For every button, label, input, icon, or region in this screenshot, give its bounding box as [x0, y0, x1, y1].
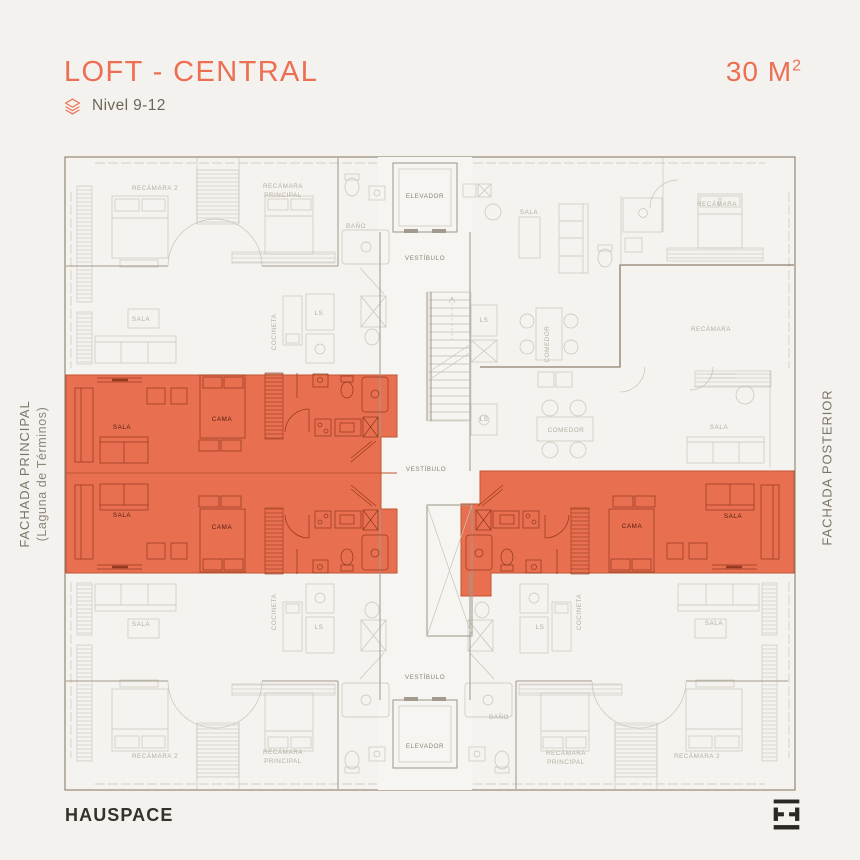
plan-label: COCINETA: [576, 594, 583, 631]
plan-label: COMEDOR: [544, 326, 551, 363]
plan-label: PRINCIPAL: [264, 192, 302, 199]
layers-icon: [64, 98, 81, 115]
plan-label: ELEVADOR: [406, 743, 444, 750]
area-superscript: 2: [792, 58, 802, 75]
area-number: 30 M: [726, 56, 792, 87]
page-title: LOFT - CENTRAL: [64, 56, 318, 89]
plan-label: SALA: [113, 512, 132, 519]
facade-principal-label: FACHADA PRINCIPAL (Laguna de Términos): [17, 324, 49, 624]
facade-posterior-label: FACHADA POSTERIOR: [820, 318, 835, 618]
plan-label: SALA: [705, 620, 724, 627]
hauspace-logo-mark: [773, 799, 800, 830]
plan-label: BAÑO: [346, 221, 366, 230]
plan-label: LS: [480, 317, 489, 324]
level-row: Nivel 9-12: [64, 97, 166, 115]
plan-label: SALA: [113, 424, 132, 431]
plan-label: BAÑO: [489, 712, 509, 721]
plan-label: RECÁMARA: [263, 747, 303, 756]
plan-label: ELEVADOR: [406, 193, 444, 200]
plan-label: LS: [480, 416, 489, 423]
facade-posterior-line1: FACHADA POSTERIOR: [820, 318, 835, 618]
plan-label: CAMA: [212, 416, 233, 423]
plan-label: SALA: [132, 316, 151, 323]
facade-principal-line1: FACHADA PRINCIPAL: [17, 324, 32, 624]
plan-label: SALA: [132, 621, 151, 628]
facade-principal-line2: (Laguna de Términos): [35, 324, 49, 624]
plan-label: SALA: [520, 209, 539, 216]
plan-label: COCINETA: [271, 594, 278, 631]
plan-label: VESTÍBULO: [406, 464, 446, 473]
brand-name: HAUSPACE: [65, 805, 173, 826]
plan-label: PRINCIPAL: [264, 758, 302, 765]
plan-label: LS: [315, 310, 324, 317]
plan-label: RECÁMARA: [263, 181, 303, 190]
plan-label: RECÁMARA: [546, 748, 586, 757]
area-value: 30 M2: [726, 56, 802, 88]
level-label: Nivel 9-12: [92, 97, 166, 115]
loft-zone-left: [66, 375, 397, 573]
plan-label: CAMA: [212, 524, 233, 531]
plan-label: SALA: [724, 513, 743, 520]
floorplan-page: LOFT - CENTRAL 30 M2 Nivel 9-12 FACHADA …: [0, 0, 860, 860]
floor-plan: RECÁMARA 2RECÁMARAPRINCIPALBAÑOSALACOCIN…: [0, 0, 860, 860]
plan-label: LS: [536, 624, 545, 631]
plan-label: RECÁMARA: [697, 199, 737, 208]
plan-label: LS: [315, 624, 324, 631]
plan-label: COCINETA: [271, 314, 278, 351]
plan-label: CAMA: [622, 523, 643, 530]
header: LOFT - CENTRAL 30 M2: [64, 56, 802, 89]
plan-label: RECÁMARA 2: [132, 183, 178, 192]
plan-label: RECÁMARA: [691, 324, 731, 333]
plan-label: COMEDOR: [548, 427, 585, 434]
plan-label: RECÁMARA 2: [674, 751, 720, 760]
plan-label: VESTÍBULO: [405, 672, 445, 681]
plan-label: RECÁMARA 2: [132, 751, 178, 760]
plan-label: VESTÍBULO: [405, 253, 445, 262]
plan-label: PRINCIPAL: [547, 759, 585, 766]
hauspace-logo: [773, 799, 800, 835]
plan-label: SALA: [710, 424, 729, 431]
